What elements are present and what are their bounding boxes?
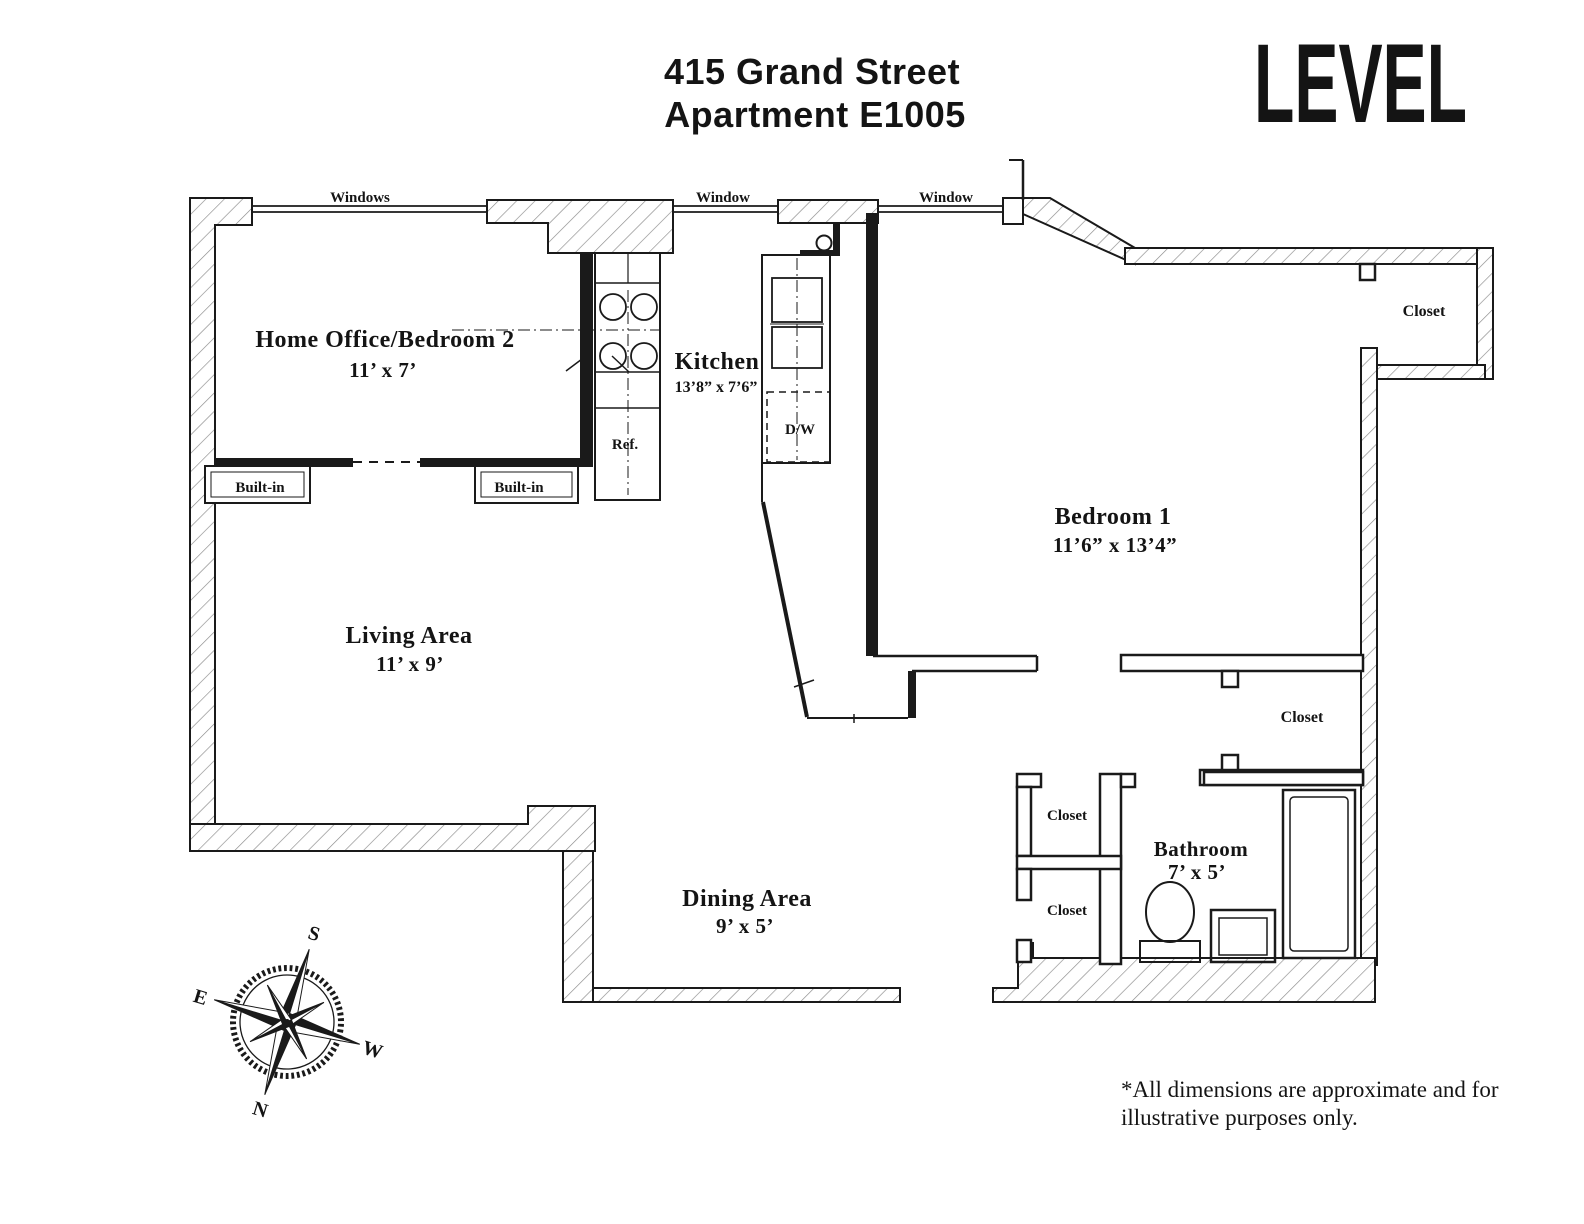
compass-south-label: S	[305, 922, 322, 946]
room-dims-kitchen: 13’8” x 7’6”	[675, 379, 758, 396]
top-closet-jamb	[1360, 264, 1375, 280]
wall-living-bottom	[190, 806, 595, 851]
wall-bathroom-north	[1204, 772, 1363, 785]
brand-logo: LEVEL	[1254, 21, 1467, 146]
bathroom-door-jamb	[1121, 774, 1135, 787]
closet2-west-wall-lower	[1017, 940, 1031, 962]
compass-rose: S W N E	[164, 895, 412, 1150]
wall-entry-diagonal	[1023, 198, 1135, 264]
refrigerator-label: Ref.	[612, 437, 638, 453]
wall-dining-bottom	[593, 988, 900, 1002]
disclaimer-line2: illustrative purposes only.	[1121, 1105, 1358, 1130]
closet2-west-wall-upper	[1017, 869, 1031, 900]
bedroom-door-jamb	[1222, 671, 1238, 687]
closet-label-top-right: Closet	[1403, 303, 1446, 320]
room-label-home-office: Home Office/Bedroom 2	[255, 327, 514, 353]
wall-bedroom-south	[1121, 655, 1363, 671]
floor-plan-page: S W N E 415 Grand Street Apartment E1005…	[0, 0, 1584, 1224]
room-dims-bathroom: 7’ x 5’	[1168, 860, 1226, 884]
room-dims-dining: 9’ x 5’	[716, 914, 774, 938]
room-label-dining: Dining Area	[682, 886, 812, 912]
disclaimer-line1: *All dimensions are approximate and for	[1121, 1077, 1499, 1102]
wall-hall-east	[908, 671, 916, 718]
wall-dining-west	[563, 851, 593, 1002]
wall-closet-right	[1477, 248, 1493, 379]
wall-closet-bottom	[1377, 365, 1485, 379]
entry-door-jamb	[1003, 198, 1023, 224]
compass-east-label: E	[191, 985, 210, 1010]
exterior-walls	[190, 198, 1493, 1002]
closet-label-hall-lower: Closet	[1047, 903, 1087, 919]
room-dims-living: 11’ x 9’	[376, 652, 444, 676]
floor-plan-drawing: S W N E 415 Grand Street Apartment E1005…	[0, 0, 1584, 1224]
closet-label-bedroom: Closet	[1281, 709, 1324, 726]
wall-top-right-band	[1125, 248, 1493, 264]
wall-bedroom-west	[866, 213, 878, 656]
closet-separator-wall	[1017, 856, 1121, 869]
page-title: 415 Grand Street	[664, 51, 960, 92]
toilet-bowl	[1146, 882, 1194, 942]
stove-burner	[631, 294, 657, 320]
room-label-living: Living Area	[345, 623, 472, 649]
closet-label-hall-upper: Closet	[1047, 808, 1087, 824]
wall-left	[190, 198, 252, 851]
wall-top-center-block	[487, 200, 673, 253]
room-dims-bedroom1: 11’6” x 13’4”	[1053, 533, 1177, 557]
windows-label: Windows	[330, 190, 390, 206]
compass-north-label: N	[250, 1097, 271, 1122]
built-in-label-left: Built-in	[235, 480, 285, 496]
bedroom-closet-jamb	[1222, 755, 1238, 770]
bathtub	[1283, 790, 1355, 958]
wall-top-block-2	[778, 200, 878, 223]
wall-bottom-right-band	[993, 943, 1375, 1002]
window-label: Window	[919, 190, 973, 206]
compass-west-label: W	[360, 1037, 386, 1064]
room-dims-home-office: 11’ x 7’	[349, 358, 417, 382]
wall-office-kitchen-divider	[580, 253, 593, 467]
room-label-bedroom1: Bedroom 1	[1055, 504, 1172, 530]
stove-burner	[600, 294, 626, 320]
closet1-west-wall	[1017, 787, 1031, 856]
stove-burner	[631, 343, 657, 369]
ceiling-light	[817, 236, 832, 251]
window-label: Window	[696, 190, 750, 206]
page-subtitle: Apartment E1005	[664, 94, 966, 135]
dishwasher-label: D/W	[785, 422, 815, 438]
bedroom-hall-walls	[873, 656, 1037, 671]
closet1-north-wall	[1017, 774, 1041, 787]
room-label-bathroom: Bathroom	[1154, 837, 1249, 861]
diagonal-tick	[794, 680, 814, 687]
built-in-label-right: Built-in	[494, 480, 544, 496]
room-label-kitchen: Kitchen	[675, 349, 760, 375]
